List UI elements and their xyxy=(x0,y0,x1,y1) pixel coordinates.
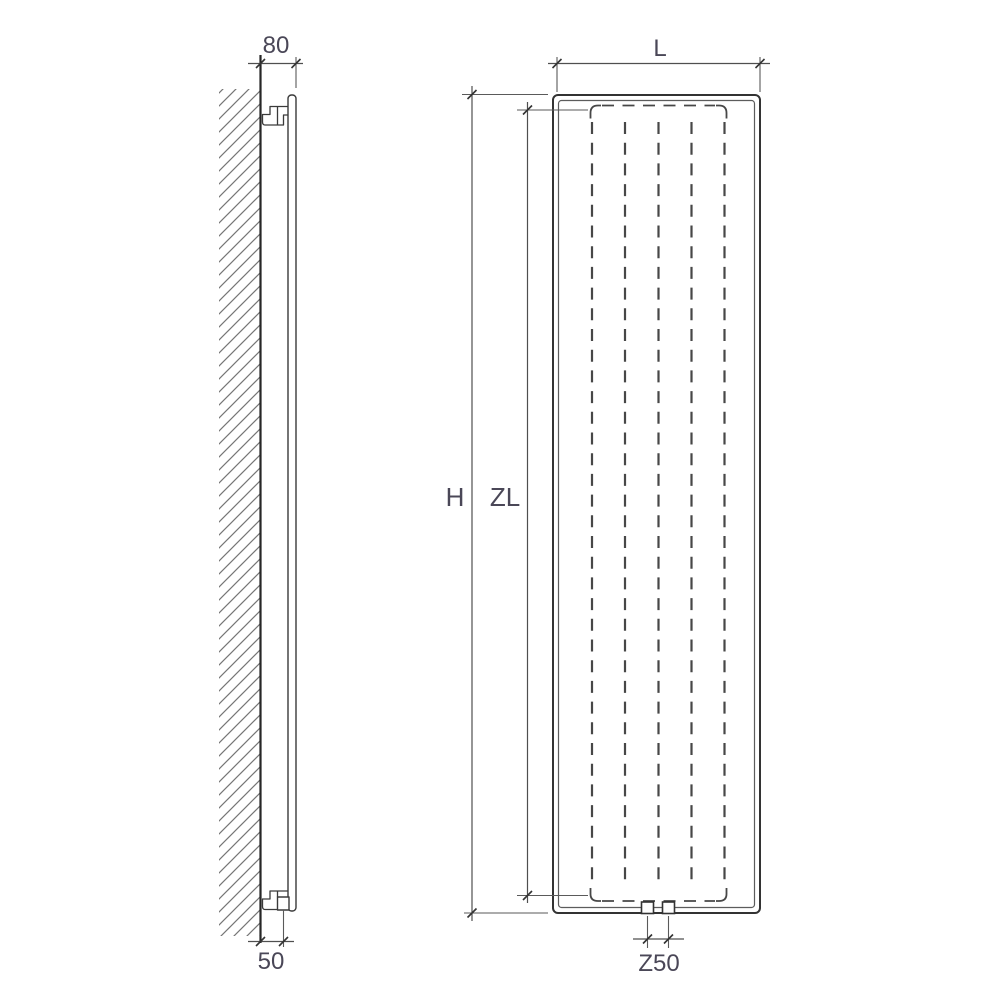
dim-label-wall-to-pipe: 50 xyxy=(258,948,285,975)
radiator-dimension-drawing: 80 50 xyxy=(0,0,1000,1000)
dim-label-element-height: ZL xyxy=(490,482,520,512)
radiator-panel-side xyxy=(288,95,296,911)
dim-pipe-spacing-Z50: Z50 xyxy=(633,916,684,977)
pipe-connection-side xyxy=(278,897,290,910)
pipe-connection-right xyxy=(663,902,675,914)
pipe-connection-left xyxy=(642,902,654,914)
dim-depth-80: 80 xyxy=(248,32,303,88)
dim-label-width: L xyxy=(653,35,666,62)
wall-hatch xyxy=(219,89,260,936)
dim-width-L: L xyxy=(548,35,770,92)
drawing-svg: 80 50 xyxy=(0,0,1000,1000)
radiator-outline xyxy=(553,95,760,913)
mounting-bracket-top xyxy=(263,107,289,126)
dim-label-pipe-spacing: Z50 xyxy=(638,950,679,977)
side-view: 80 50 xyxy=(219,32,303,975)
mounting-bracket-bottom xyxy=(263,891,290,910)
dim-label-depth: 80 xyxy=(263,32,290,59)
dim-label-height: H xyxy=(446,482,465,512)
front-view: L H ZL Z50 xyxy=(446,35,770,977)
